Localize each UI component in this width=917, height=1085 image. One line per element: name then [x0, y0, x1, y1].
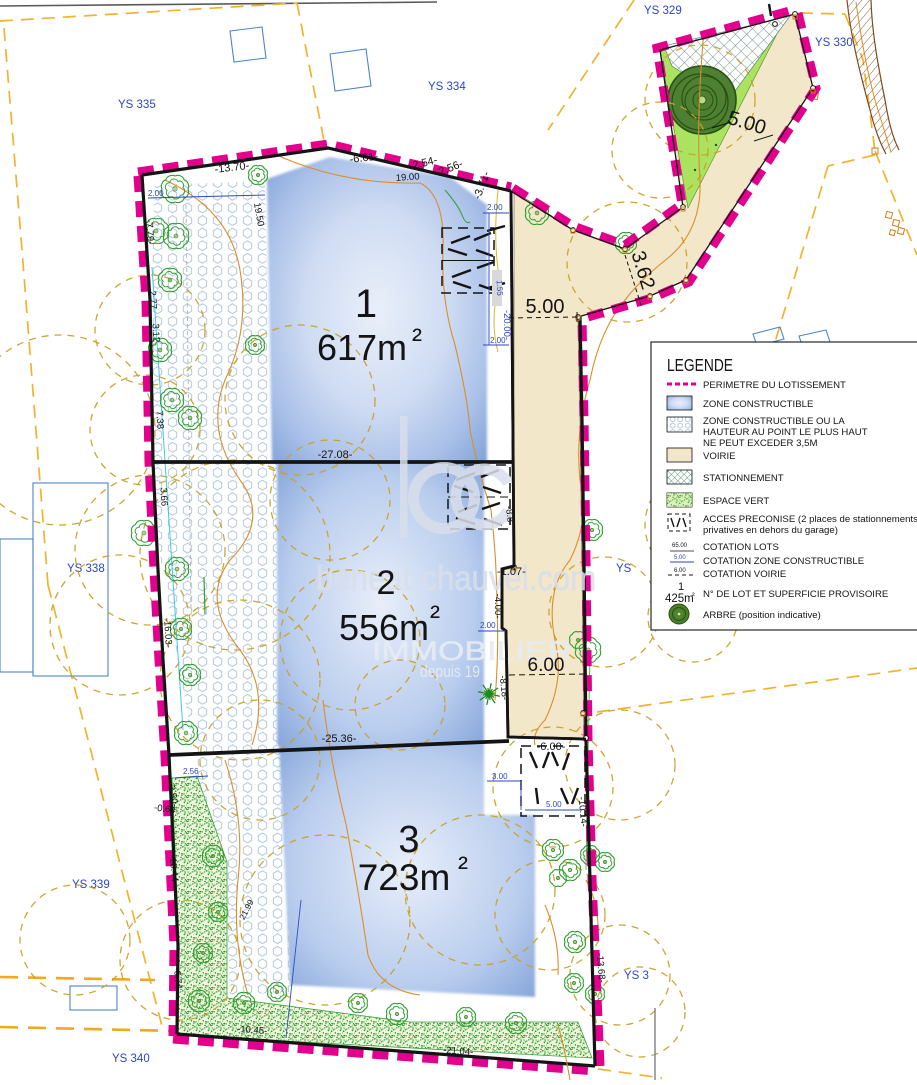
svg-text:5.00: 5.00: [546, 800, 562, 809]
svg-text:NE PEUT EXCEDER 3,5M: NE PEUT EXCEDER 3,5M: [703, 438, 817, 449]
svg-text:1: 1: [355, 282, 377, 326]
svg-text:YS 329: YS 329: [644, 5, 682, 17]
svg-text:6.00: 6.00: [528, 655, 565, 676]
svg-text:65.00: 65.00: [672, 543, 688, 549]
svg-text:5.00: 5.00: [674, 555, 686, 561]
svg-text:2.56: 2.56: [183, 767, 199, 776]
svg-text:3: 3: [398, 819, 419, 861]
svg-text:3.66: 3.66: [158, 487, 170, 506]
svg-text:privatives en dehors du garage: privatives en dehors du garage): [703, 525, 838, 536]
svg-text:7.38: 7.38: [154, 410, 166, 429]
svg-text:COTATION VOIRIE: COTATION VOIRIE: [703, 569, 786, 580]
svg-text:N° DE LOT ET SUPERFICIE PROVIS: N° DE LOT ET SUPERFICIE PROVISOIRE: [703, 589, 888, 600]
svg-text:723m: 723m: [358, 857, 451, 898]
svg-text:COTATION LOTS: COTATION LOTS: [703, 542, 779, 553]
svg-text:²: ²: [430, 600, 440, 633]
svg-text:2.77: 2.77: [147, 290, 159, 309]
svg-text:556m: 556m: [339, 607, 429, 648]
svg-text:YS 340: YS 340: [112, 1053, 150, 1065]
svg-text:²: ²: [458, 851, 468, 884]
svg-text:VOIRIE: VOIRIE: [703, 451, 736, 462]
svg-text:beneat-chauvel.com: beneat-chauvel.com: [316, 559, 596, 598]
svg-text:ARBRE (position indicative): ARBRE (position indicative): [703, 610, 821, 621]
svg-text:2.00: 2.00: [148, 189, 164, 198]
svg-text:425m: 425m: [665, 593, 694, 605]
svg-text:-16.03-: -16.03-: [161, 618, 174, 649]
svg-text:-27.08-: -27.08-: [318, 449, 353, 461]
svg-text:ZONE CONSTRUCTIBLE OU LA: ZONE CONSTRUCTIBLE OU LA: [703, 416, 845, 427]
svg-text:3.00: 3.00: [492, 772, 508, 781]
svg-text:2: 2: [377, 564, 396, 602]
svg-text:YS 330: YS 330: [815, 37, 853, 49]
svg-text:19.00: 19.00: [395, 171, 419, 184]
svg-text:YS 335: YS 335: [118, 99, 156, 111]
svg-text:5.00: 5.00: [526, 296, 565, 318]
svg-text:ACCES PRECONISE (2 places de s: ACCES PRECONISE (2 places de stationneme…: [703, 514, 917, 525]
svg-text:617m: 617m: [317, 327, 407, 368]
svg-text:²: ²: [412, 323, 422, 356]
svg-text:-1.07-: -1.07-: [497, 566, 526, 578]
svg-text:ZONE CONSTRUCTIBLE: ZONE CONSTRUCTIBLE: [703, 399, 813, 410]
svg-text:ESPACE VERT: ESPACE VERT: [703, 496, 769, 507]
svg-text:1.55: 1.55: [495, 280, 505, 297]
svg-text:COTATION ZONE CONSTRUCTIBLE: COTATION ZONE CONSTRUCTIBLE: [703, 556, 864, 567]
svg-text:YS: YS: [616, 563, 632, 575]
svg-text:depuis 19: depuis 19: [420, 663, 480, 681]
svg-text:YS 3: YS 3: [624, 970, 649, 982]
svg-text:-10.45-: -10.45-: [237, 1024, 268, 1037]
svg-text:2.00: 2.00: [480, 621, 496, 630]
svg-text:-21.04-: -21.04-: [443, 1045, 474, 1058]
svg-text:LEGENDE: LEGENDE: [667, 355, 733, 375]
svg-text:-6.00-: -6.00-: [537, 741, 566, 753]
svg-text:-6.74-: -6.74-: [171, 967, 184, 993]
svg-text:2.00: 2.00: [487, 203, 503, 212]
svg-text:PERIMETRE DU LOTISSEMENT: PERIMETRE DU LOTISSEMENT: [703, 380, 846, 391]
svg-text:2.00: 2.00: [490, 336, 506, 345]
svg-text:-7.79-: -7.79-: [143, 219, 155, 244]
svg-text:²: ²: [692, 591, 695, 600]
svg-text:-25.36-: -25.36-: [322, 733, 357, 745]
svg-text:3.12: 3.12: [150, 323, 162, 342]
svg-text:HAUTEUR AU POINT LE PLUS HAUT: HAUTEUR AU POINT LE PLUS HAUT: [703, 427, 868, 438]
svg-text:1: 1: [678, 581, 684, 593]
svg-text:YS 334: YS 334: [428, 81, 466, 93]
svg-text:-4.00-: -4.00-: [492, 594, 503, 619]
svg-text:STATIONNEMENT: STATIONNEMENT: [703, 473, 784, 484]
svg-text:-8.8-: -8.8-: [503, 505, 516, 526]
svg-text:6.00: 6.00: [674, 568, 686, 574]
